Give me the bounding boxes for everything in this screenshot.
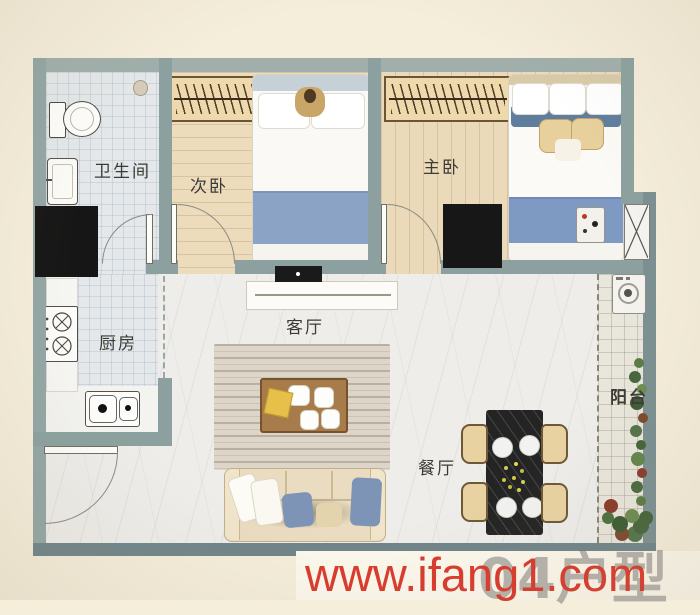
secondary-bedroom-wardrobe-icon <box>170 76 258 122</box>
washer-panel <box>626 277 630 280</box>
kitchen-label-text: 厨房 <box>99 334 137 353</box>
washbasin-inner <box>52 164 73 199</box>
table-napkin <box>264 388 294 419</box>
secondary-bedroom-bed-icon <box>252 74 370 264</box>
sofa-icon <box>224 468 386 542</box>
tv-console <box>246 281 398 310</box>
master-bedroom-wardrobe-icon <box>384 76 512 122</box>
bed-blanket <box>253 191 369 246</box>
balcony-label-text: 阳台 <box>610 388 648 407</box>
plate-icon <box>496 497 517 518</box>
dining-chair-icon <box>541 424 568 464</box>
kitchen-open-boundary <box>163 276 165 378</box>
living-room-label-text: 客厅 <box>286 318 324 337</box>
bed-pillow <box>586 83 624 115</box>
centerpiece-icon <box>512 476 516 480</box>
sofa-seam <box>331 471 333 499</box>
dining-room-label-text: 餐厅 <box>418 459 456 478</box>
bed-blanket <box>509 197 623 245</box>
kitchen-sink-icon <box>85 391 140 427</box>
tray-item-red <box>582 214 587 219</box>
balcony-plants-icon <box>634 358 644 368</box>
master-bedroom-bed-icon <box>508 74 624 262</box>
bathroom-label-text: 卫生间 <box>94 162 151 181</box>
secondary-bedroom-label-text: 次卧 <box>190 177 228 196</box>
shower-area <box>35 206 98 277</box>
sofa-pillow-blue <box>350 477 382 527</box>
tv-console-line <box>255 294 391 296</box>
stove-burners-icon <box>43 307 76 360</box>
washing-machine-icon <box>612 274 646 314</box>
table-cushion <box>314 387 334 408</box>
dining-chair-icon <box>541 483 568 523</box>
tray-item-dark <box>583 229 587 233</box>
duct-shaft <box>624 204 650 260</box>
balcony-floor <box>598 274 643 543</box>
balcony-boundary-dashed <box>597 274 599 543</box>
plate-icon <box>522 497 543 518</box>
sink-drain-left <box>98 404 107 413</box>
table-cushion <box>300 410 319 430</box>
stove-icon <box>42 306 78 362</box>
living-room-label: 客厅 <box>286 313 324 338</box>
floor-plan: 卫生间 次卧 主卧 厨房 客厅 餐厅 阳台 <box>0 0 700 600</box>
wardrobe-rod <box>389 98 507 100</box>
bed-throw <box>555 139 581 161</box>
watermark-site-url: www.ifang1.com <box>305 547 647 602</box>
bed-pillow <box>512 83 549 115</box>
dining-chair-icon <box>461 424 488 464</box>
washbasin-icon <box>47 158 78 205</box>
tray-item-dark <box>592 221 598 227</box>
bed-decor-basket-icon <box>295 87 325 117</box>
wall-bedroom2-bedroom1 <box>368 58 381 274</box>
kitchen-label: 厨房 <box>99 329 137 354</box>
washer-drum-icon <box>618 283 639 304</box>
toilet-bowl-inner <box>70 107 94 131</box>
sofa-pillow-tan <box>316 503 342 527</box>
dining-chair-icon <box>461 482 488 522</box>
bathroom-label: 卫生间 <box>94 157 151 182</box>
wall-kitchen-bottom <box>33 432 172 446</box>
bed-tray-icon <box>576 207 605 243</box>
dining-room-label: 餐厅 <box>418 454 456 479</box>
sofa-pillow-blue <box>281 492 314 529</box>
washer-drum-center <box>624 289 632 297</box>
bed-pillow <box>549 83 586 115</box>
wall-right-bedroom <box>621 58 634 204</box>
bed-fold <box>509 243 623 261</box>
tv-power-dot <box>296 272 300 276</box>
toilet-bowl-icon <box>63 101 101 137</box>
wall-top <box>33 58 634 72</box>
master-bedroom-cabinet <box>443 204 502 268</box>
floor-drain-icon <box>133 80 148 96</box>
washer-panel <box>616 277 623 280</box>
balcony-plants-corner-icon <box>602 512 614 524</box>
duct-x-icon <box>625 205 648 258</box>
sofa-pillow-white <box>250 477 285 527</box>
wardrobe-rod <box>174 98 254 100</box>
wall-kitchen-right <box>158 378 172 432</box>
plate-icon <box>519 435 540 456</box>
bed-decor-top <box>304 89 316 103</box>
tv-icon <box>275 266 322 282</box>
coffee-table-icon <box>260 378 348 433</box>
sink-drain-right <box>125 405 131 411</box>
plate-icon <box>492 437 513 458</box>
secondary-bedroom-label: 次卧 <box>190 172 228 197</box>
balcony-label: 阳台 <box>610 383 648 408</box>
table-cushion <box>321 409 340 429</box>
master-bedroom-label: 主卧 <box>423 153 461 178</box>
dining-table-icon <box>486 410 543 535</box>
master-bedroom-label-text: 主卧 <box>423 158 461 177</box>
